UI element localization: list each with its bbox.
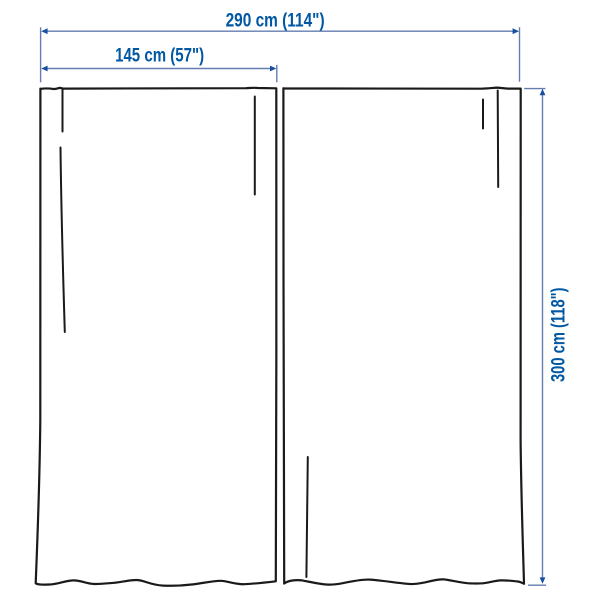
svg-text:300 cm (118"): 300 cm (118"): [549, 288, 570, 383]
svg-text:145 cm (57"): 145 cm (57"): [115, 46, 204, 67]
svg-text:290 cm (114"): 290 cm (114"): [226, 10, 325, 31]
